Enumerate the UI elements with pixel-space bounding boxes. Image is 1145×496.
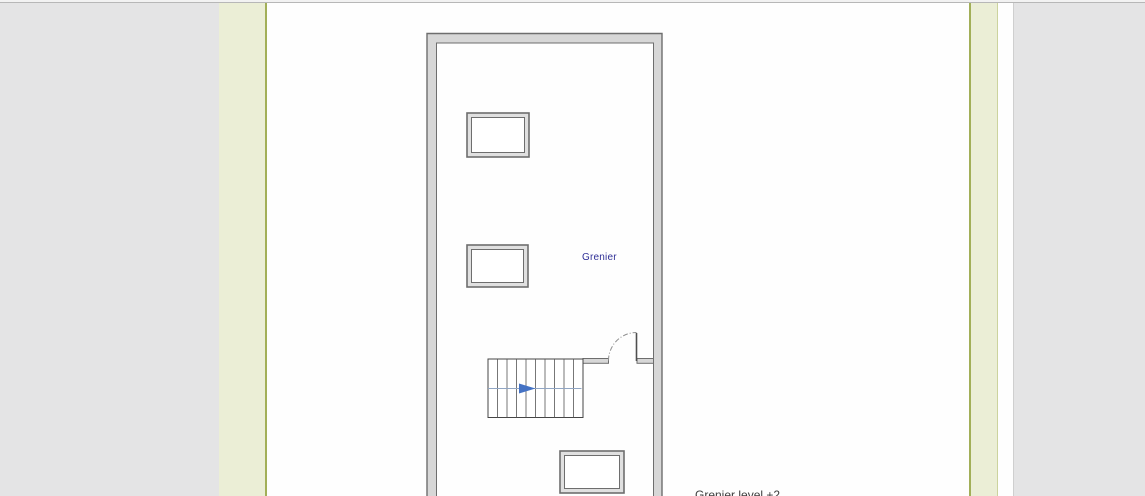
floorplan-drawing[interactable] <box>0 0 1145 496</box>
door[interactable] <box>609 333 637 362</box>
plan-caption: Grenier level +2 <box>695 488 780 496</box>
window-top[interactable] <box>467 113 529 157</box>
exterior-walls[interactable] <box>427 34 662 496</box>
door-swing-arc <box>609 333 637 361</box>
drawing-canvas[interactable]: Grenier Grenier level +2 <box>0 0 1145 496</box>
staircase[interactable] <box>488 359 583 418</box>
window-bottom[interactable] <box>560 451 624 493</box>
window-middle[interactable] <box>467 245 528 287</box>
room-label[interactable]: Grenier <box>582 252 617 263</box>
top-divider-line <box>0 0 1145 3</box>
interior-wall[interactable] <box>583 359 654 364</box>
